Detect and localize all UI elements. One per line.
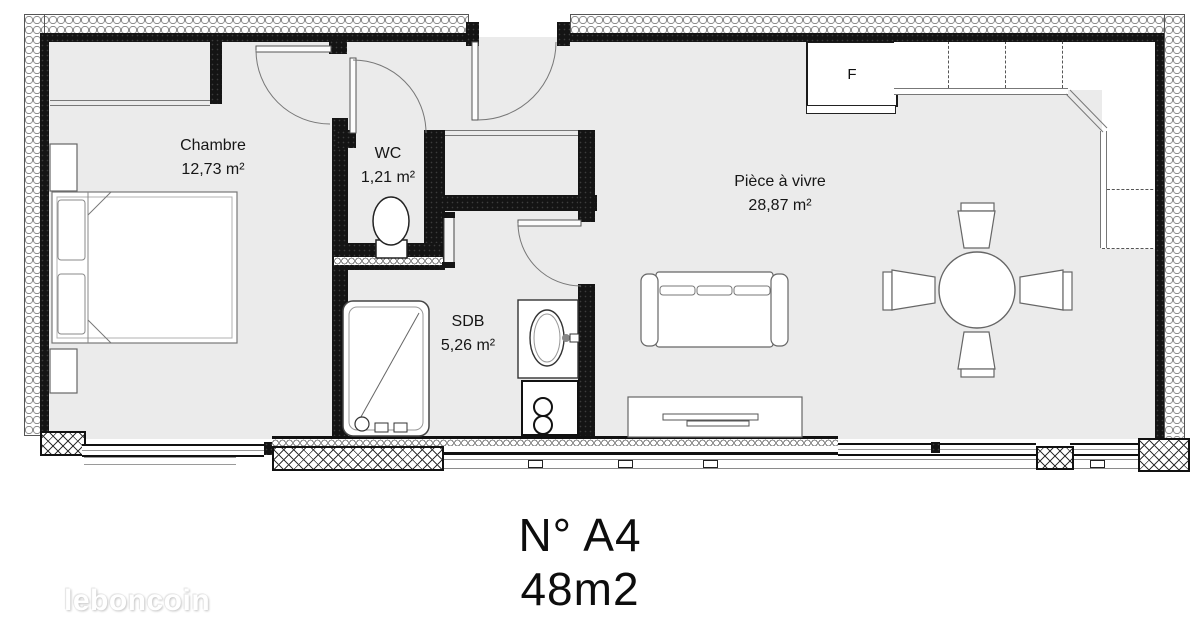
room-label-piece-a-vivre: Pièce à vivre 28,87 m² [680,170,880,218]
railing-post [703,460,718,468]
entrance-jamb-left [466,22,479,46]
window-chambre-sill [84,457,236,465]
wall-wc-bottom [332,243,445,270]
leboncoin-logo: leboncoin [64,584,210,618]
window-living-mullion [931,442,940,453]
room-label-chambre: Chambre 12,73 m² [123,134,303,182]
railing-post [528,460,543,468]
railing-post [1090,460,1105,468]
wall-sdb-right-lower [578,284,595,438]
entrance-jamb-right [557,22,570,46]
facade-pier-living [1036,446,1074,470]
wall-top-right-segment [570,33,1158,42]
wall-right [1155,33,1164,438]
wall-left [40,33,49,438]
entry-closet-front [445,130,578,136]
floor-plan-page: F [0,0,1200,643]
balcony-railing [443,459,1186,469]
insulation-right [1164,14,1185,462]
room-area: 5,26 m² [408,334,528,358]
window-chambre [82,444,264,457]
kitchen-counter-right-front-edge [1100,131,1107,248]
room-label-sdb: SDB 5,26 m² [408,310,528,358]
facade-pier-sdb [272,446,444,471]
wall-wc-bottom-insulation [334,257,443,265]
plan-title-number: N° A4 [400,508,760,562]
facade-corner-left [40,431,86,456]
insulation-top-right [570,14,1185,35]
wall-sdb-right-upper [578,130,595,222]
room-name: Chambre [123,134,303,158]
kitchen-cabinet-separator [1005,41,1007,88]
kitchen-fridge-plinth [806,105,896,114]
room-label-wc: WC 1,21 m² [336,142,440,190]
facade-corner-right [1138,438,1190,472]
chambre-wardrobe-front [50,100,210,106]
room-name: Pièce à vivre [680,170,880,194]
room-name: WC [336,142,440,166]
kitchen-counter-top [894,41,1160,90]
room-area: 12,73 m² [123,158,303,182]
plan-title-area: 48m2 [400,562,760,616]
wall-closet-bottom [440,195,597,211]
wall-top-left-segment [40,33,467,42]
kitchen-cabinet-separator [948,41,950,88]
wall-closet-stub-chambre [210,42,222,104]
plan-title: N° A4 48m2 [400,508,760,616]
window-living-small [1070,443,1138,456]
room-area: 1,21 m² [336,166,440,190]
kitchen-counter-top-front-edge [894,88,1068,95]
facade-wall-band-insulation [272,439,838,446]
kitchen-cabinet-separator [1107,189,1158,191]
kitchen-cabinet-separator [1062,41,1064,88]
room-area: 28,87 m² [680,194,880,218]
wall-chambre-door-jamb-top [329,40,347,54]
kitchen-counter-right [1102,90,1158,249]
railing-post [618,460,633,468]
insulation-top-left [24,14,469,35]
fridge-label: F [808,66,896,83]
kitchen-fridge: F [806,41,898,107]
room-name: SDB [408,310,528,334]
